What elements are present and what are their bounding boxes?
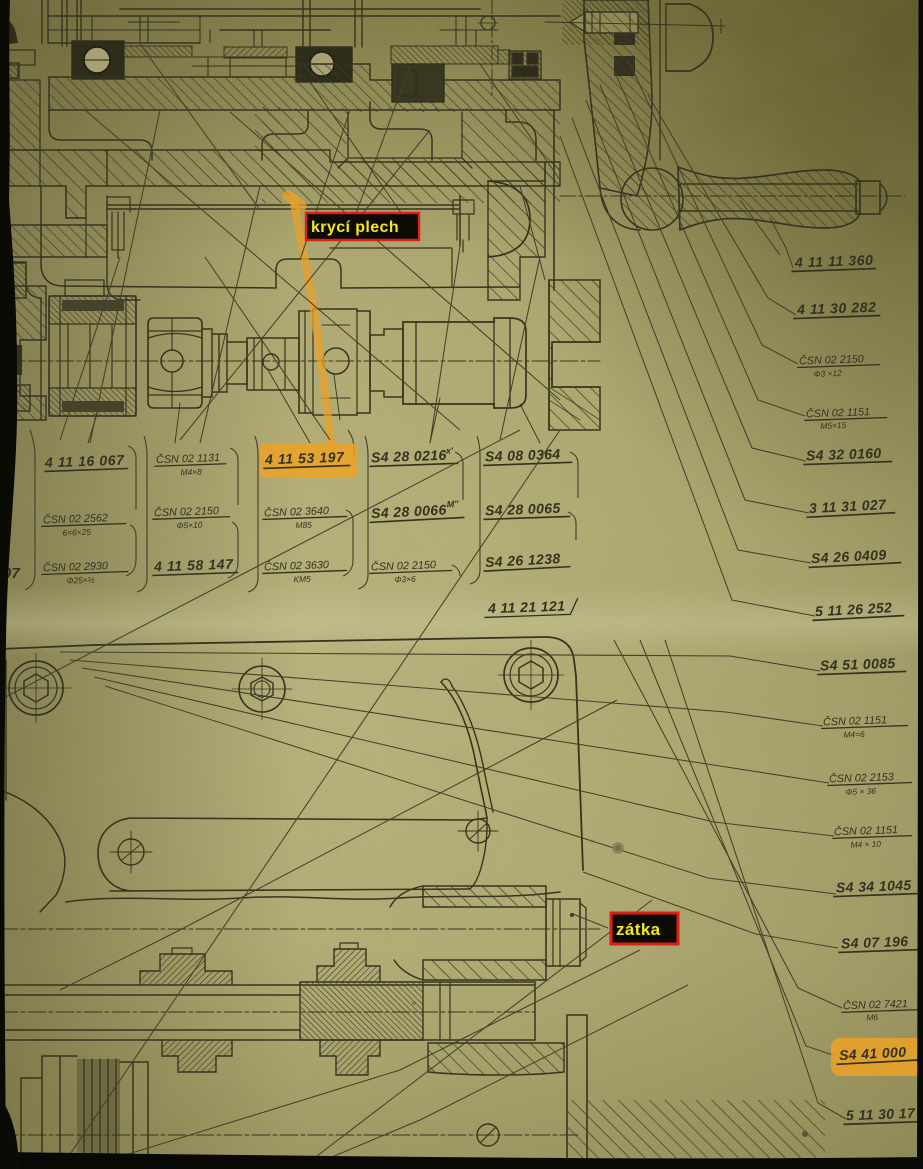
svg-text:S4 07 196: S4 07 196 bbox=[841, 933, 909, 951]
svg-text:4 11 21 121: 4 11 21 121 bbox=[487, 598, 566, 617]
svg-text:S4 32 0160: S4 32 0160 bbox=[806, 445, 882, 464]
svg-text:Φ5 × 36: Φ5 × 36 bbox=[845, 786, 876, 797]
svg-text:M4=6: M4=6 bbox=[843, 729, 865, 740]
svg-text:M″: M″ bbox=[446, 499, 459, 510]
svg-text:S4 08 0364: S4 08 0364 bbox=[485, 446, 561, 465]
svg-text:Φ25×½: Φ25×½ bbox=[66, 575, 95, 586]
svg-text:4 11 53 197: 4 11 53 197 bbox=[264, 449, 346, 468]
svg-text:4 11 16 067: 4 11 16 067 bbox=[44, 452, 126, 471]
svg-text:6×6×25: 6×6×25 bbox=[62, 527, 91, 538]
svg-text:5 11 30 17: 5 11 30 17 bbox=[846, 1105, 916, 1123]
svg-text:zátka: zátka bbox=[616, 920, 661, 939]
svg-text:M85: M85 bbox=[295, 520, 312, 531]
svg-text:S4 28 0216: S4 28 0216 bbox=[371, 447, 447, 466]
svg-text:Φ3 ×12: Φ3 ×12 bbox=[813, 368, 842, 379]
svg-text:Φ5×10: Φ5×10 bbox=[176, 520, 203, 531]
svg-text:M4 × 10: M4 × 10 bbox=[850, 839, 881, 850]
svg-text:x′: x′ bbox=[445, 445, 454, 455]
svg-text:M5×15: M5×15 bbox=[820, 420, 847, 431]
svg-text:M6: M6 bbox=[866, 1012, 878, 1022]
svg-text:4 11 11 360: 4 11 11 360 bbox=[794, 252, 874, 271]
svg-text:M4×8: M4×8 bbox=[180, 467, 202, 478]
svg-text:krycí plech: krycí plech bbox=[311, 219, 399, 236]
svg-text:Φ3×6: Φ3×6 bbox=[394, 574, 416, 585]
svg-text:S4 28 0065: S4 28 0065 bbox=[485, 500, 561, 519]
svg-text:4 11 58 147: 4 11 58 147 bbox=[153, 556, 235, 575]
svg-text:S4 34 1045: S4 34 1045 bbox=[836, 877, 912, 896]
svg-text:4 11 30 282: 4 11 30 282 bbox=[796, 299, 877, 318]
svg-text:S4 51 0085: S4 51 0085 bbox=[820, 655, 896, 674]
svg-text:KM5: KM5 bbox=[293, 574, 311, 585]
